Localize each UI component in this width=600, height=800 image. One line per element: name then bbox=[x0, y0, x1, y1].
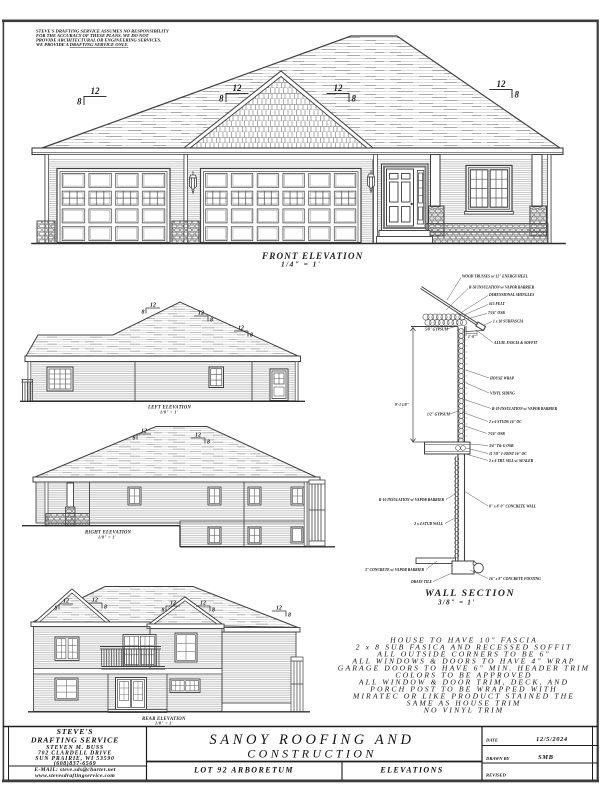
svg-text:1/8" = 1': 1/8" = 1' bbox=[160, 410, 179, 415]
svg-text:DIMENSIONAL SHINGLES: DIMENSIONAL SHINGLES bbox=[488, 293, 534, 297]
svg-text:3" CONCRETE w/ VAPOR BARRIER: 3" CONCRETE w/ VAPOR BARRIER bbox=[364, 568, 425, 572]
svg-text:VINYL SIDING: VINYL SIDING bbox=[490, 392, 515, 396]
svg-text:3/4" T& G OSB: 3/4" T& G OSB bbox=[488, 444, 514, 448]
svg-text:5/8" GYPSUM: 5/8" GYPSUM bbox=[425, 328, 449, 332]
svg-text:WOOD TRUSSES w/ 12" ENERGY HEE: WOOD TRUSSES w/ 12" ENERGY HEEL bbox=[462, 275, 529, 279]
svg-text:1 x 10 SUBFASCIA: 1 x 10 SUBFASCIA bbox=[493, 320, 524, 324]
svg-text:9'-1 1/8": 9'-1 1/8" bbox=[395, 403, 409, 407]
svg-text:2 x 6 STUDS 16" OC: 2 x 6 STUDS 16" OC bbox=[488, 420, 522, 424]
svg-text:1/2" GYPSUM: 1/2" GYPSUM bbox=[427, 413, 451, 417]
svg-text:ELEVATIONS: ELEVATIONS bbox=[379, 766, 443, 775]
svg-text:DRAIN TILE: DRAIN TILE bbox=[410, 580, 433, 584]
svg-text:DRAFTING SERVICE: DRAFTING SERVICE bbox=[30, 736, 119, 745]
svg-text:R-50 INSULATION w/ VAPOR BARRI: R-50 INSULATION w/ VAPOR BARRIER bbox=[469, 286, 535, 290]
svg-text:REVISED: REVISED bbox=[486, 773, 507, 778]
svg-text:16" x 8" CONCRETE FOOTING: 16" x 8" CONCRETE FOOTING bbox=[489, 577, 541, 581]
svg-text:11 7/8" I-JOIST 16" OC: 11 7/8" I-JOIST 16" OC bbox=[489, 452, 527, 456]
svg-text:(608)837-6569: (608)837-6569 bbox=[54, 760, 97, 767]
svg-text:DRAWN BY: DRAWN BY bbox=[485, 756, 511, 761]
svg-text:ALUM. FASCIA & SOFFIT: ALUM. FASCIA & SOFFIT bbox=[493, 341, 538, 345]
svg-text:8" x 8'-9" CONCRETE WALL: 8" x 8'-9" CONCRETE WALL bbox=[489, 505, 537, 509]
svg-text:2 x 6 TRT. SILL w/ SEALER: 2 x 6 TRT. SILL w/ SEALER bbox=[488, 459, 534, 463]
svg-text:7/16" OSB: 7/16" OSB bbox=[488, 311, 505, 315]
svg-text:DATE: DATE bbox=[485, 738, 498, 743]
svg-text:3/8" = 1': 3/8" = 1' bbox=[437, 599, 475, 607]
svg-text:LOT 92 ARBORETUM: LOT 92 ARBORETUM bbox=[193, 766, 294, 775]
svg-text:7/16" OSB: 7/16" OSB bbox=[488, 432, 505, 436]
svg-text:CONSTRUCTION: CONSTRUCTION bbox=[247, 747, 377, 761]
svg-text:1/4" = 1': 1/4" = 1' bbox=[281, 260, 321, 269]
svg-text:HOUSE WRAP: HOUSE WRAP bbox=[489, 377, 515, 381]
svg-text:1/8" = 1': 1/8" = 1' bbox=[98, 535, 117, 540]
svg-text:#15 FELT: #15 FELT bbox=[488, 302, 506, 306]
svg-text:WALL SECTION: WALL SECTION bbox=[425, 588, 515, 599]
svg-text:2 x 4 STUD WALL: 2 x 4 STUD WALL bbox=[413, 522, 443, 526]
svg-text:R-10 INSULATION w/ VAPOR BARRI: R-10 INSULATION w/ VAPOR BARRIER bbox=[379, 498, 445, 502]
svg-text:NO VINYL TRIM: NO VINYL TRIM bbox=[423, 706, 505, 715]
svg-text:www.stevesdraftingservice.com: www.stevesdraftingservice.com bbox=[35, 773, 115, 779]
svg-text:1'-0": 1'-0" bbox=[468, 335, 476, 339]
svg-text:12/5/2024: 12/5/2024 bbox=[536, 736, 568, 743]
svg-text:WE PROVIDE A DRAFTING SERVICE: WE PROVIDE A DRAFTING SERVICE ONLY. bbox=[36, 42, 129, 47]
svg-text:SMB: SMB bbox=[538, 754, 554, 761]
svg-text:1/8" = 1': 1/8" = 1' bbox=[155, 721, 174, 726]
svg-text:R-19 INSULATION w/ VAPOR BARRI: R-19 INSULATION w/ VAPOR BARRIER bbox=[492, 407, 558, 411]
